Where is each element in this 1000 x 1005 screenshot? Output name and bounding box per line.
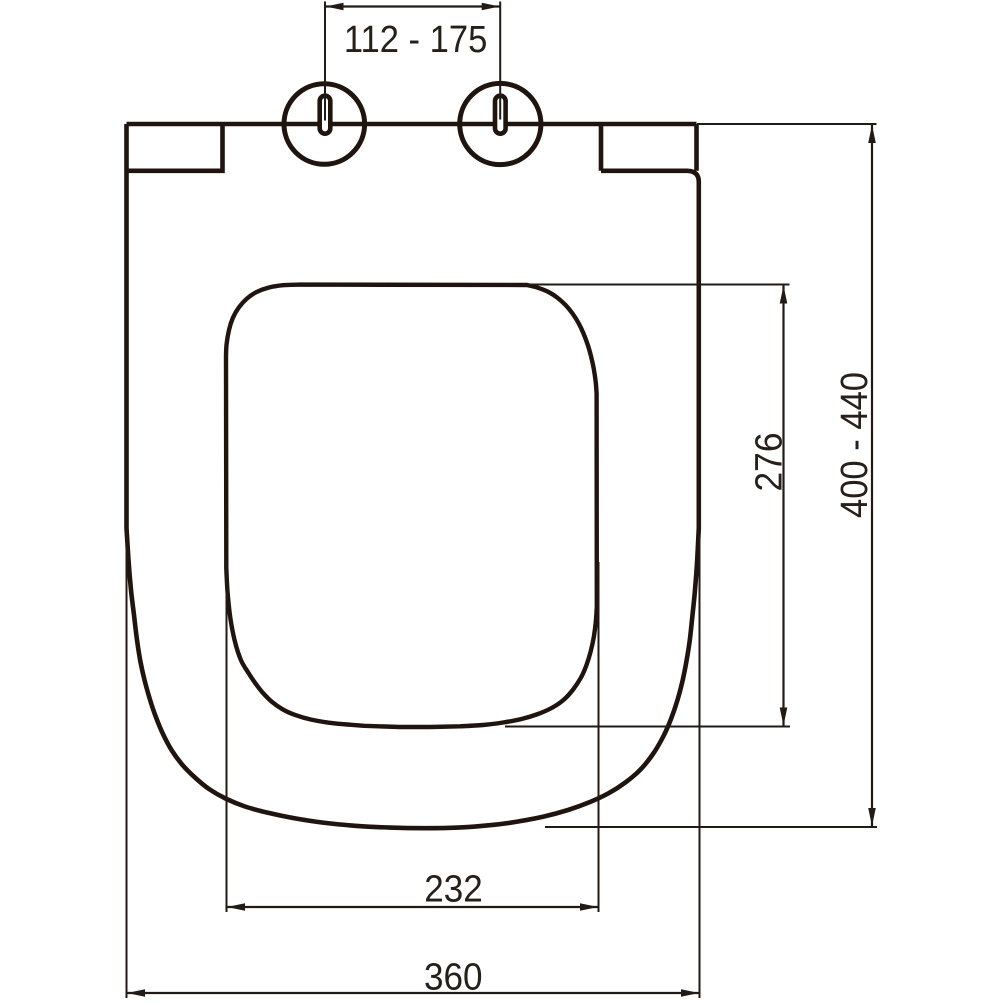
svg-text:360: 360 [424,956,483,998]
svg-text:232: 232 [424,869,483,911]
svg-text:276: 276 [749,433,791,492]
svg-text:400 - 440: 400 - 440 [834,372,876,518]
svg-text:112 - 175: 112 - 175 [344,19,488,61]
